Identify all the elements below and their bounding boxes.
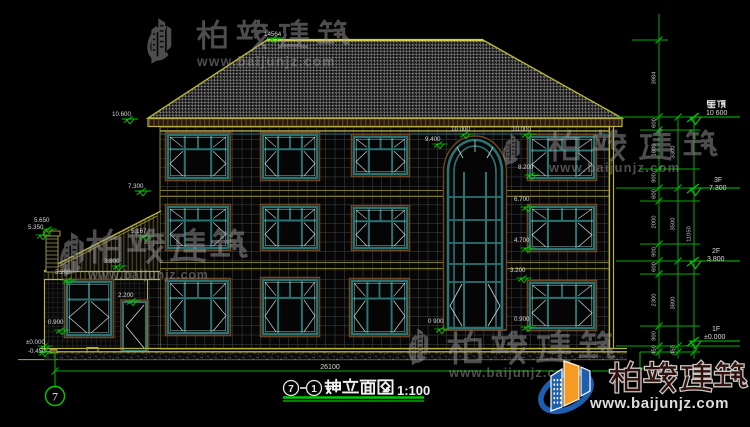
svg-text:9.400: 9.400 xyxy=(425,136,441,143)
svg-text:1:100: 1:100 xyxy=(397,383,430,398)
svg-text:-0.450: -0.450 xyxy=(28,348,46,355)
svg-text:www.baijunjz.com: www.baijunjz.com xyxy=(87,268,209,282)
svg-text:10 600: 10 600 xyxy=(706,110,728,117)
svg-text:7.300: 7.300 xyxy=(709,185,727,192)
svg-text:2.200: 2.200 xyxy=(118,292,134,299)
svg-text:±0.000: ±0.000 xyxy=(704,334,725,341)
svg-text:11050: 11050 xyxy=(687,226,693,242)
svg-text:7: 7 xyxy=(288,384,294,395)
svg-text:26100: 26100 xyxy=(320,364,340,371)
svg-text:0.900: 0.900 xyxy=(514,316,530,323)
svg-text:1: 1 xyxy=(311,384,317,395)
svg-text:4.700: 4.700 xyxy=(514,237,530,244)
svg-text:www.baijunjz.com: www.baijunjz.com xyxy=(548,160,680,175)
svg-text:8.200: 8.200 xyxy=(518,164,534,171)
svg-text:450: 450 xyxy=(671,345,677,355)
svg-text:600: 600 xyxy=(652,118,658,128)
svg-text:5.650: 5.650 xyxy=(34,217,50,224)
svg-text:3300: 3300 xyxy=(671,146,677,159)
svg-text:3.200: 3.200 xyxy=(510,267,526,274)
svg-text:3F: 3F xyxy=(714,177,722,184)
svg-text:2000: 2000 xyxy=(652,216,658,229)
svg-text:5.167: 5.167 xyxy=(131,228,147,235)
svg-text:3500: 3500 xyxy=(671,218,677,231)
svg-text:600: 600 xyxy=(652,189,658,199)
svg-text:1F: 1F xyxy=(712,326,720,333)
svg-text:www.baijunjz.com: www.baijunjz.com xyxy=(589,395,729,412)
svg-text:900: 900 xyxy=(652,331,658,341)
svg-text:2F: 2F xyxy=(712,248,720,255)
svg-text:7: 7 xyxy=(52,390,58,404)
svg-text:5.350: 5.350 xyxy=(28,224,44,231)
svg-text:www.baijunjz.com: www.baijunjz.com xyxy=(196,54,336,69)
svg-text:10.600: 10.600 xyxy=(112,111,131,118)
svg-text:6.700: 6.700 xyxy=(514,196,530,203)
svg-text:3.800: 3.800 xyxy=(707,256,725,263)
svg-text:450: 450 xyxy=(652,345,658,355)
svg-text:7.300: 7.300 xyxy=(128,183,144,190)
svg-text:0.900: 0.900 xyxy=(48,319,64,326)
svg-text:±0.000: ±0.000 xyxy=(26,339,45,346)
svg-text:0 900: 0 900 xyxy=(428,318,444,325)
svg-text:600: 600 xyxy=(652,262,658,272)
svg-text:900: 900 xyxy=(652,247,658,257)
svg-text:2300: 2300 xyxy=(652,294,658,307)
svg-text:10.000: 10.000 xyxy=(512,126,531,133)
svg-text:3984: 3984 xyxy=(652,71,658,85)
svg-text:3800: 3800 xyxy=(671,297,677,310)
